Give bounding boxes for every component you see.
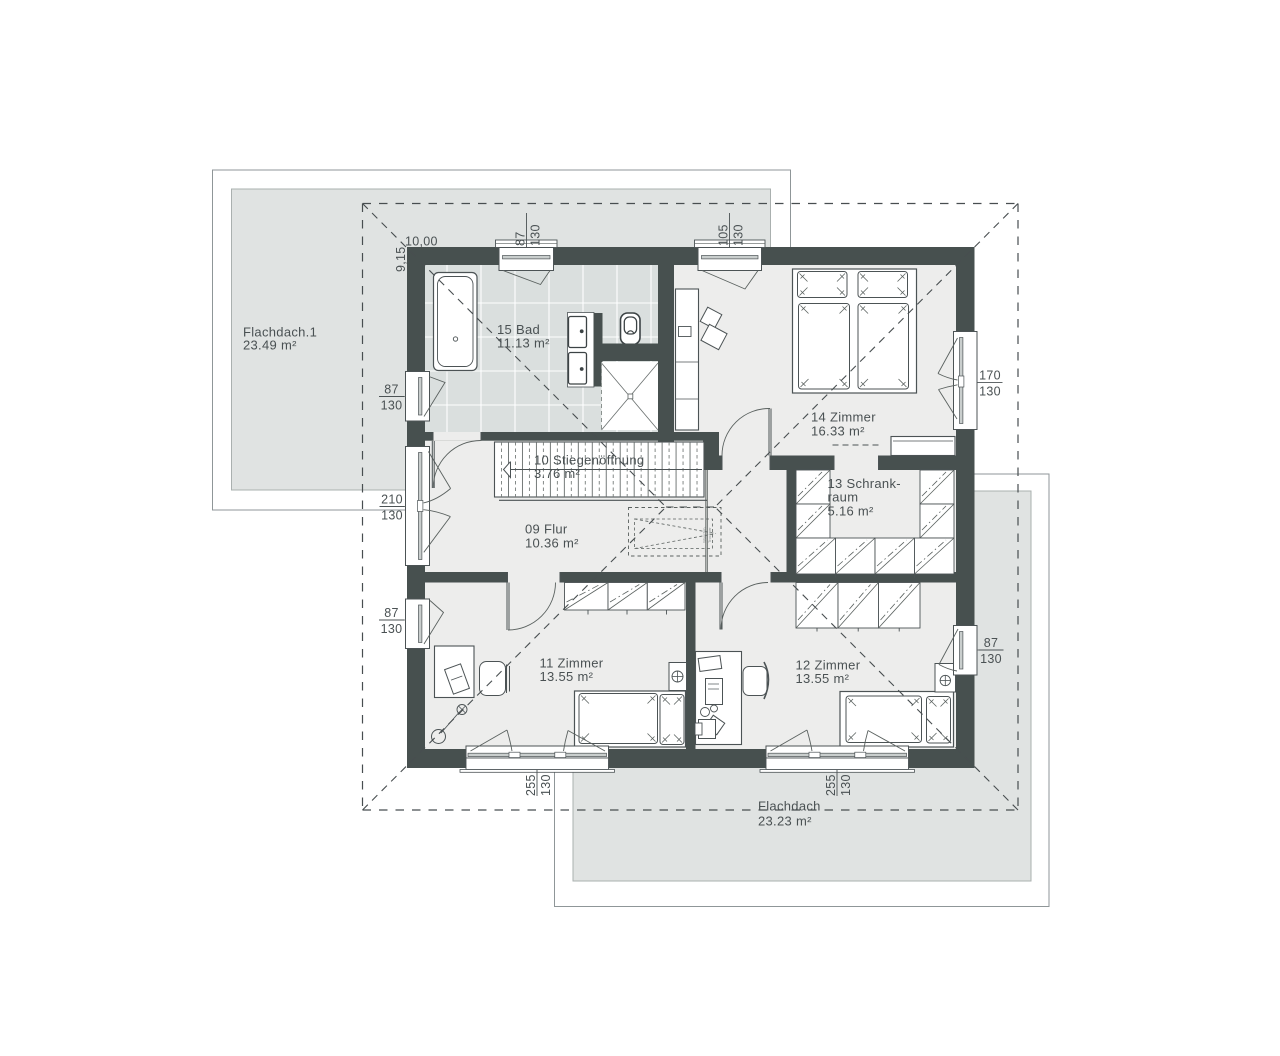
svg-text:105: 105 — [717, 224, 731, 246]
svg-text:87: 87 — [384, 606, 399, 620]
svg-text:13.55 m²: 13.55 m² — [796, 671, 850, 686]
svg-text:210: 210 — [381, 493, 403, 507]
svg-text:255: 255 — [824, 774, 838, 796]
svg-text:09 Flur: 09 Flur — [525, 522, 568, 537]
svg-text:255: 255 — [524, 774, 538, 796]
svg-text:11.13 m²: 11.13 m² — [497, 336, 550, 351]
svg-text:130: 130 — [529, 224, 543, 246]
svg-text:23.23 m²: 23.23 m² — [758, 814, 812, 829]
svg-text:Trockner: Trockner — [707, 527, 712, 543]
svg-text:5.16 m²: 5.16 m² — [828, 504, 875, 519]
svg-text:16.33 m²: 16.33 m² — [811, 424, 865, 439]
svg-text:87: 87 — [984, 636, 999, 650]
svg-text:130: 130 — [980, 652, 1002, 666]
svg-text:14 Zimmer: 14 Zimmer — [811, 410, 876, 425]
svg-text:130: 130 — [732, 224, 746, 246]
svg-text:130: 130 — [839, 774, 853, 796]
svg-text:87: 87 — [514, 231, 528, 246]
svg-text:13.55 m²: 13.55 m² — [540, 669, 594, 684]
svg-text:170: 170 — [979, 368, 1001, 382]
svg-text:10.36 m²: 10.36 m² — [525, 536, 579, 551]
svg-text:10,00: 10,00 — [405, 235, 438, 249]
svg-text:130: 130 — [539, 774, 553, 796]
svg-text:130: 130 — [381, 399, 403, 413]
svg-text:raum: raum — [828, 490, 859, 505]
svg-text:9,15: 9,15 — [394, 246, 408, 272]
svg-text:23.49 m²: 23.49 m² — [243, 338, 297, 353]
svg-text:130: 130 — [979, 384, 1001, 398]
svg-text:Waschm.: Waschm. — [702, 526, 707, 543]
svg-text:87: 87 — [384, 383, 399, 397]
svg-text:Flachdach: Flachdach — [758, 799, 821, 814]
svg-text:130: 130 — [381, 509, 403, 523]
svg-text:130: 130 — [381, 622, 403, 636]
svg-text:3.76 m²: 3.76 m² — [534, 466, 581, 481]
